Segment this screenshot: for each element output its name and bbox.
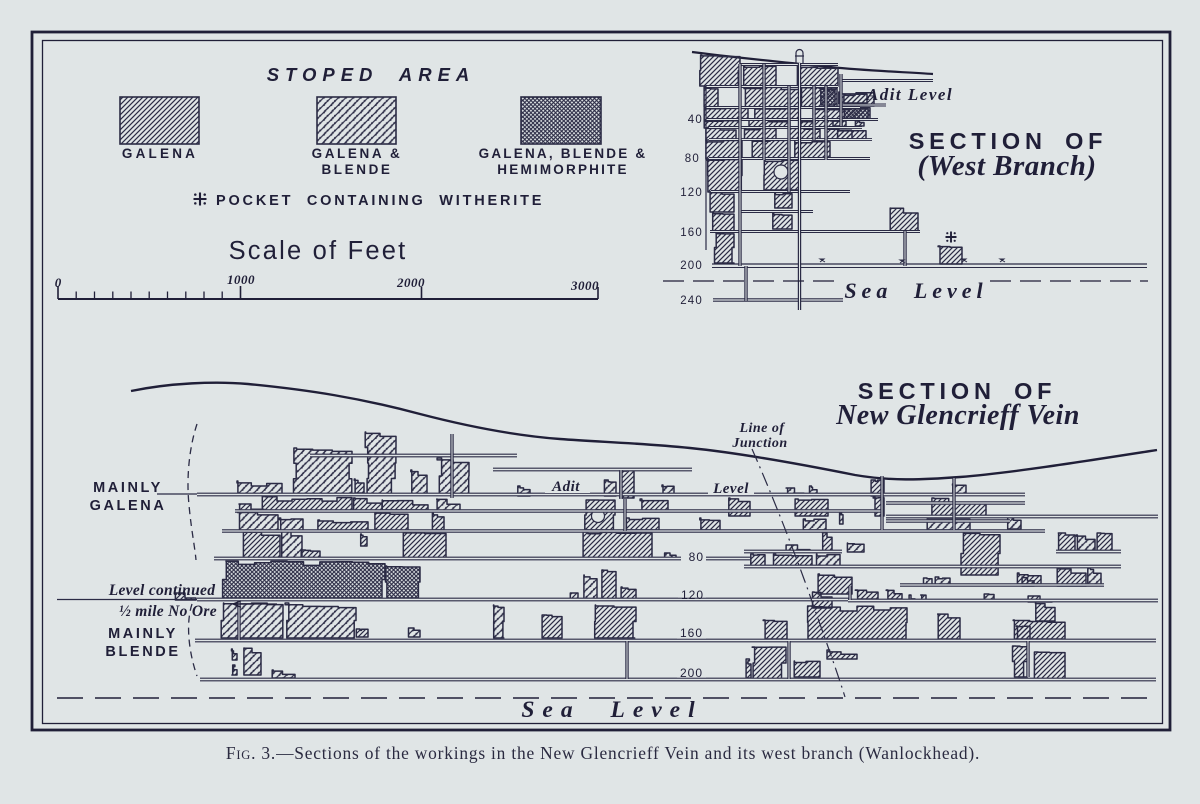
- svg-text:Scale of Feet: Scale of Feet: [229, 237, 408, 265]
- svg-text:Junction: Junction: [731, 436, 787, 451]
- svg-text:3000: 3000: [570, 278, 599, 293]
- svg-text:MAINLY: MAINLY: [108, 626, 178, 642]
- svg-text:MAINLY: MAINLY: [93, 480, 163, 496]
- svg-text:Level continued: Level continued: [108, 582, 216, 599]
- svg-text:120: 120: [681, 588, 704, 602]
- svg-text:200: 200: [680, 666, 703, 680]
- svg-text:(West Branch): (West Branch): [917, 150, 1096, 182]
- svg-text:80: 80: [685, 153, 700, 165]
- svg-text:Line of: Line of: [738, 421, 785, 436]
- svg-text:Level: Level: [712, 481, 749, 497]
- svg-text:New Glencrieff Vein: New Glencrieff Vein: [835, 400, 1080, 431]
- svg-text:1000: 1000: [227, 272, 255, 287]
- svg-text:120: 120: [680, 187, 703, 199]
- svg-text:Adit: Adit: [551, 479, 580, 495]
- svg-text:STOPED AREA: STOPED AREA: [267, 64, 476, 85]
- svg-text:0: 0: [55, 275, 62, 290]
- svg-text:160: 160: [680, 227, 703, 239]
- svg-text:80: 80: [689, 550, 704, 564]
- svg-text:GALENA &: GALENA &: [312, 146, 403, 161]
- svg-text:200: 200: [680, 260, 703, 272]
- svg-text:BLENDE: BLENDE: [105, 644, 180, 660]
- svg-text:GALENA, BLENDE &: GALENA, BLENDE &: [479, 146, 648, 161]
- svg-text:HEMIMORPHITE: HEMIMORPHITE: [497, 162, 628, 177]
- svg-text:2000: 2000: [396, 275, 425, 290]
- svg-text:240: 240: [680, 295, 703, 307]
- svg-text:40: 40: [688, 114, 703, 126]
- svg-text:BLENDE: BLENDE: [321, 162, 392, 177]
- svg-text:GALENA: GALENA: [122, 146, 198, 161]
- svg-text:Sea Level: Sea Level: [844, 278, 987, 303]
- svg-text:GALENA: GALENA: [90, 498, 167, 514]
- svg-text:POCKET CONTAINING WITHERITE: POCKET CONTAINING WITHERITE: [216, 193, 544, 209]
- svg-text:FIG. 3.—Sections of the workin: FIG. 3.—Sections of the workings in the …: [226, 743, 980, 763]
- svg-text:160: 160: [680, 626, 703, 640]
- svg-text:½ mile No Ore: ½ mile No Ore: [119, 603, 217, 620]
- svg-text:Sea Level: Sea Level: [521, 697, 702, 723]
- svg-text:Adit Level: Adit Level: [866, 85, 953, 104]
